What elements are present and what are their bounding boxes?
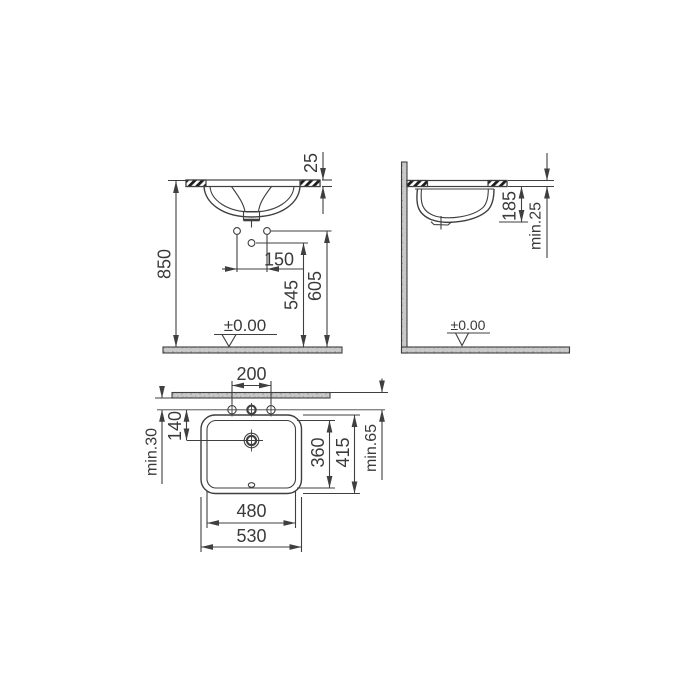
dim-label-hole-spacing: 150: [264, 250, 294, 270]
dim-label-bowl-depth: 185: [500, 191, 520, 221]
dim-label-rim-height: 850: [155, 249, 175, 279]
dim-label-inner-depth: 360: [308, 437, 328, 467]
dim-label-counter-thickness: 25: [301, 153, 321, 173]
floor-level-label-front: ±0.00: [224, 316, 266, 335]
dim-label-counter-min: min.25: [528, 202, 545, 250]
technical-drawing-page: 25 850 150 545 605 ±0.00 185 min.25 ±0.0…: [0, 0, 700, 700]
background: [0, 0, 700, 700]
dim-label-holes-height: 605: [305, 271, 325, 301]
side-floor: [402, 347, 570, 353]
dim-label-outer-width: 530: [236, 526, 266, 546]
front-counter-hatch-right: [300, 180, 320, 187]
dim-label-inner-width: 480: [236, 501, 266, 521]
plan-counter-edge: [172, 393, 330, 399]
side-counter-hatch-right: [488, 181, 507, 187]
front-floor: [163, 347, 342, 353]
dim-label-outer-depth: 415: [333, 437, 353, 467]
dim-label-holes-to-drain: 140: [165, 411, 185, 441]
side-wall: [402, 162, 408, 353]
side-counter-hatch-left: [407, 181, 428, 187]
dim-label-edge-min: min.30: [144, 428, 161, 476]
floor-level-label-side: ±0.00: [451, 317, 486, 333]
washbasin-installation-drawing: 25 850 150 545 605 ±0.00 185 min.25 ±0.0…: [0, 0, 700, 700]
front-counter-hatch-left: [186, 180, 206, 187]
dim-label-tap-spacing: 200: [236, 364, 266, 384]
dim-label-drain-height: 545: [282, 280, 302, 310]
dim-label-wall-min: min.65: [363, 424, 380, 472]
